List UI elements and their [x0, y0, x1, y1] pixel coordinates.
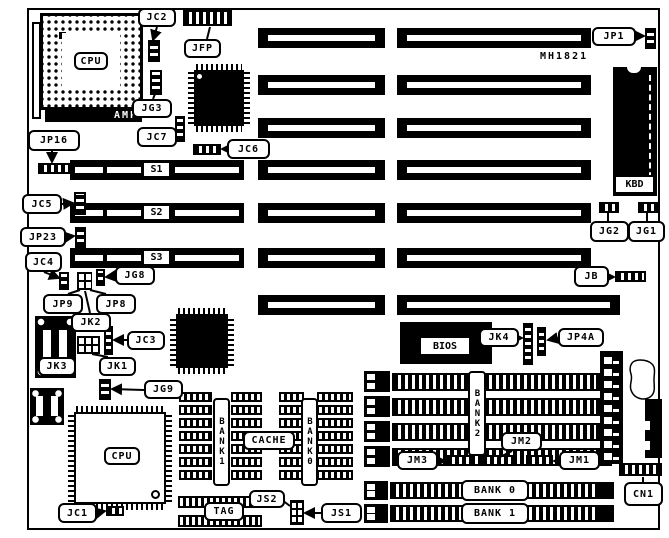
cache-dip [179, 444, 212, 454]
jc1-jumper [106, 506, 124, 516]
kbd-label: KBD [614, 175, 655, 194]
cache-dip [231, 418, 262, 428]
cpu-chip-pin1-circle [151, 490, 160, 499]
cache-dip [317, 470, 353, 480]
cache-dip [179, 418, 212, 428]
simm-clip [598, 482, 614, 499]
jg3-jumper [150, 70, 162, 95]
cache-dip [231, 405, 262, 415]
jg9-jumper [99, 379, 111, 400]
jk4-jumper-b [537, 327, 546, 356]
jp9-label: JP9 [43, 294, 83, 314]
js2-label: JS2 [249, 490, 285, 508]
cache-dip [231, 457, 262, 467]
s3-label: S3 [142, 249, 171, 266]
jm3-jumper [446, 455, 473, 466]
jg3-label: JG3 [132, 99, 172, 118]
jb-jumper [615, 271, 646, 282]
simm-socket [392, 398, 598, 416]
s1-label: S1 [142, 161, 171, 178]
jp16-jumper [38, 163, 72, 174]
jk3-label: JK3 [38, 357, 76, 376]
keyboard-din-connector [645, 399, 662, 458]
jc4-label: JC4 [25, 252, 62, 272]
cpu-chip-label: CPU [104, 447, 140, 465]
simm-bracket [364, 446, 390, 467]
simm-bracket [364, 371, 390, 392]
js1-label: JS1 [321, 503, 362, 523]
jk2-label: JK2 [71, 313, 111, 332]
cache-dip [317, 418, 353, 428]
cache-dip [179, 405, 212, 415]
jm1-label: JM1 [559, 451, 600, 470]
cache-dip [179, 431, 212, 441]
jc6-label: JC6 [227, 139, 270, 159]
jg1-jumper [638, 202, 658, 213]
jp1-label: JP1 [592, 27, 636, 46]
cpu-socket-label: CPU [74, 52, 108, 70]
jp23-jumper [75, 227, 86, 248]
cache-dip [317, 444, 353, 454]
jg1-label: JG1 [628, 221, 665, 242]
jfp-header [183, 10, 232, 26]
bank1-slot-label: BANK 1 [461, 503, 529, 524]
jk4-jumper-a [523, 323, 533, 365]
cache-label: CACHE [243, 431, 295, 450]
cache-dip [317, 457, 353, 467]
amp-socket-bar: AMP [45, 108, 142, 122]
isa-slot [397, 248, 591, 268]
isa-slot [258, 203, 385, 223]
jb-label: JB [574, 266, 609, 287]
jm2-jumper [481, 455, 514, 466]
isa-slot [397, 118, 591, 138]
jc6-jumper [193, 144, 221, 155]
jc5-jumper [74, 192, 86, 215]
cache-bank1-label: BANK1 [213, 398, 230, 486]
js-jumper-block [290, 500, 304, 525]
cn1-connector [619, 463, 662, 476]
jg8-jumper [96, 269, 105, 286]
jm1-jumper [526, 455, 553, 466]
simm-bracket [364, 504, 388, 523]
motherboard-diagram: CPU AMP JC2 JFP JG3 JC7 JC6 JP16 JC5 JP2… [0, 0, 669, 538]
jc7-label: JC7 [137, 127, 177, 147]
cache-dip [231, 470, 262, 480]
jc5-label: JC5 [22, 194, 62, 214]
simm-clip [598, 505, 614, 522]
isa-slot [397, 75, 591, 95]
jfp-label: JFP [184, 39, 221, 58]
jg8-label: JG8 [115, 266, 155, 285]
jm3-label: JM3 [397, 451, 438, 470]
jp4a-label: JP4A [558, 328, 604, 347]
cache-dip [317, 431, 353, 441]
isa-slot [258, 248, 385, 268]
cache-dip [179, 470, 212, 480]
simm-socket [392, 373, 598, 391]
board-model-text: MH1821 [540, 51, 588, 62]
jp1-jumper [645, 28, 656, 49]
simm-bracket [364, 481, 388, 500]
tag-label: TAG [204, 502, 244, 521]
clock-chip-pin1-dot [197, 74, 202, 79]
jk1-label: JK1 [99, 357, 136, 376]
isa-slot [258, 75, 385, 95]
cache-dip [317, 405, 353, 415]
bios-label: BIOS [419, 336, 471, 356]
jc4-jumper [59, 272, 69, 290]
chipset-chip [170, 308, 234, 374]
simm-bank2-label: BANK2 [468, 371, 486, 456]
feature-header [600, 351, 623, 464]
jk1-header [77, 336, 100, 354]
jp8-label: JP8 [96, 294, 136, 314]
jc3-label: JC3 [127, 331, 165, 350]
jc2-label: JC2 [138, 8, 176, 27]
jk2-header [77, 272, 92, 290]
cache-bank0-label: BANK0 [301, 398, 318, 486]
cache-dip [231, 392, 262, 402]
jp23-label: JP23 [20, 227, 66, 247]
isa-slot [397, 203, 591, 223]
jg2-jumper [599, 202, 619, 213]
isa-slot [258, 28, 385, 48]
jk3-connector-2 [30, 388, 64, 425]
s2-label: S2 [142, 204, 171, 221]
cache-dip [317, 392, 353, 402]
jg2-label: JG2 [590, 221, 629, 242]
isa-slot [258, 160, 385, 180]
simm-bracket [364, 396, 390, 417]
isa-slot [258, 118, 385, 138]
jp16-label: JP16 [28, 130, 80, 151]
jc2-jumper [148, 40, 160, 62]
bank0-slot-label: BANK 0 [461, 480, 529, 501]
simm-socket [392, 423, 598, 441]
jm2-label: JM2 [501, 432, 542, 451]
cache-dip [179, 392, 212, 402]
simm-bracket [364, 421, 390, 442]
jk4-label: JK4 [479, 328, 519, 347]
cn1-label: CN1 [624, 482, 663, 506]
isa-slot [258, 295, 385, 315]
isa-slot [397, 295, 620, 315]
jc1-label: JC1 [58, 503, 97, 523]
isa-slot [397, 160, 591, 180]
cache-dip [179, 457, 212, 467]
jg9-label: JG9 [144, 380, 183, 399]
isa-slot [397, 28, 591, 48]
